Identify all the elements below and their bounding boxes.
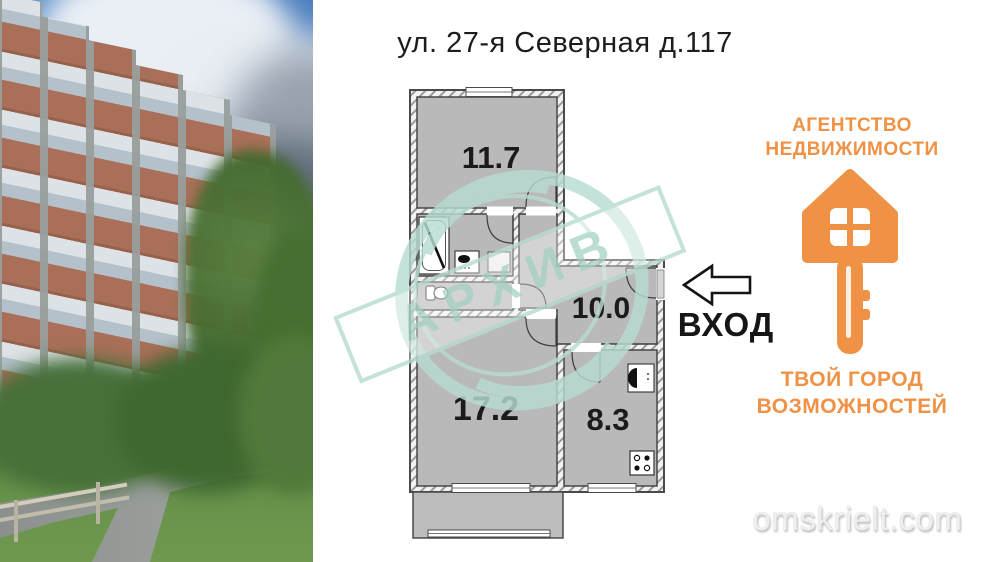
house-key-logo-icon	[795, 166, 905, 362]
agency-name: АГЕНТСТВО НЕДВИЖИМОСТИ	[752, 114, 952, 162]
railing-post	[14, 500, 18, 542]
area-living: 11.7	[462, 140, 521, 175]
agency-name-line2: НЕДВИЖИМОСТИ	[752, 138, 952, 162]
website-watermark: omskrielt.com	[750, 500, 965, 538]
stove-icon	[630, 451, 654, 475]
entrance-door-leaf	[657, 270, 664, 298]
washer-icon	[488, 252, 510, 272]
slogan-line2: ВОЗМОЖНОСТЕЙ	[742, 393, 962, 420]
entrance-label: ВХОД	[666, 306, 786, 344]
agency-name-line1: АГЕНТСТВО	[752, 114, 952, 138]
area-bedroom: 17.2	[453, 390, 519, 428]
railing-post	[96, 482, 100, 524]
floor-plan: 11.7 10.0 17.2 8.3	[405, 85, 675, 547]
slogan-line1: ТВОЙ ГОРОД	[742, 366, 962, 393]
entrance-arrow-icon	[678, 262, 756, 310]
address-title: ул. 27-я Северная д.117	[375, 27, 755, 60]
area-kitchen: 8.3	[586, 402, 629, 437]
kitchen-sink-icon	[628, 364, 654, 392]
agency-slogan: ТВОЙ ГОРОД ВОЗМОЖНОСТЕЙ	[742, 366, 962, 420]
area-hallway: 10.0	[572, 292, 630, 325]
bathtub-icon	[419, 217, 449, 274]
real-estate-listing-image: ул. 27-я Северная д.117	[0, 0, 1000, 562]
sink-icon	[455, 251, 479, 273]
building-photo	[0, 0, 313, 562]
toilet-icon	[426, 286, 448, 300]
